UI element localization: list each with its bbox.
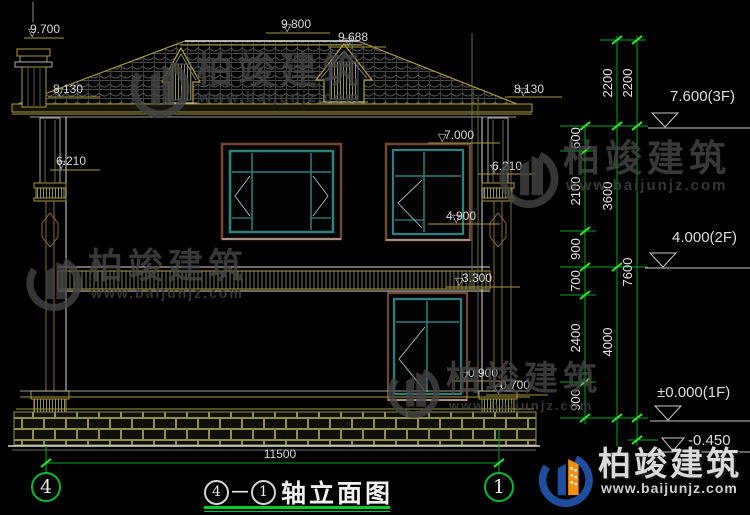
dim-outer-2200: 2200	[620, 53, 636, 113]
watermark-brand: 柏竣建筑	[196, 52, 364, 90]
level-window2f-sill: 4.900	[446, 210, 476, 223]
level-window2f-head: 7.000	[444, 129, 474, 142]
watermark-logo-icon	[386, 362, 442, 418]
storey-level-2f: 4.000(2F)	[672, 230, 737, 246]
chimney	[15, 49, 52, 107]
watermark-url: www.baijunjz.com	[199, 90, 364, 105]
level-triangle-icon: ▽	[438, 133, 446, 143]
level-triangle-icon: ▽	[55, 87, 63, 97]
level-triangle-icon: ▽	[452, 214, 460, 224]
watermark-right: 柏竣建筑 www.baijunjz.com	[497, 140, 731, 193]
dim-mid-4000: 4000	[600, 312, 616, 372]
title-axis-to: 1	[251, 480, 276, 505]
window-2f-centre	[222, 144, 341, 239]
watermark-brand: 柏竣建筑	[88, 248, 248, 286]
axis-bubble-1: 1	[484, 472, 514, 502]
watermark-brand: 柏竣建筑	[563, 140, 731, 178]
level-triangle-icon: ▽	[283, 23, 291, 33]
drawing-title: 4 — 1 轴立面图	[204, 474, 393, 510]
dash-icon: —	[232, 483, 248, 501]
watermark-url: www.baijunjz.com	[449, 398, 602, 413]
watermark-bottom: 柏竣建筑 www.baijunjz.com	[386, 360, 602, 413]
watermark-logo-icon	[497, 144, 561, 208]
watermark-brand: 柏竣建筑	[446, 360, 602, 398]
brand-logo-icon	[538, 447, 596, 509]
watermark-url: www.baijunjz.com	[91, 286, 248, 301]
level-window1f-head: 3.300	[462, 272, 492, 285]
storey-level-1f: ±0.000(1F)	[657, 385, 730, 401]
watermark-logo-icon	[24, 251, 84, 311]
brand-footer: 柏竣建筑 www.baijunjz.com	[538, 447, 742, 496]
brand-url: www.baijunjz.com	[601, 481, 742, 496]
storey-level-3f: 7.600(3F)	[670, 89, 735, 105]
window-2f-right	[386, 144, 470, 240]
dim-mid-2200: 2200	[600, 53, 616, 113]
level-triangle-icon: ▽	[344, 37, 352, 47]
dim-outer-7600: 7600	[620, 242, 636, 302]
dim-inner-2400: 2400	[568, 308, 584, 368]
dim-total-width: 11500	[256, 448, 304, 461]
level-dormer-top: 9.688	[338, 31, 368, 44]
axis-bubble-4: 4	[31, 472, 61, 502]
cad-elevation-canvas: 9.700 9.800 9.688 8.130 8.130 7.000 6.21…	[0, 0, 750, 515]
watermark-logo-icon	[128, 54, 192, 118]
level-triangle-icon: ▽	[57, 160, 65, 170]
title-text: 轴立面图	[281, 474, 393, 510]
watermark-url: www.baijunjz.com	[566, 178, 731, 193]
watermark-top: 柏竣建筑 www.baijunjz.com	[128, 52, 364, 105]
title-axis-from: 4	[204, 480, 229, 505]
level-triangle-icon: ▽	[455, 277, 463, 287]
title-underline-thin	[204, 511, 390, 512]
watermark-left: 柏竣建筑 www.baijunjz.com	[24, 248, 248, 301]
title-underline-thick	[204, 506, 390, 509]
dim-inner-700: 700	[568, 251, 584, 311]
level-triangle-icon: ▽	[28, 28, 36, 38]
brand-name: 柏竣建筑	[598, 447, 742, 481]
level-triangle-icon: ▽	[519, 87, 527, 97]
